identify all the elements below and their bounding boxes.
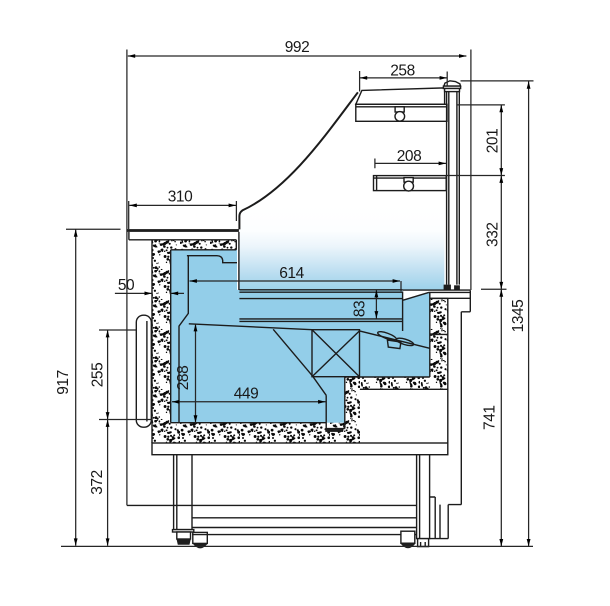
svg-text:258: 258 [390, 62, 415, 79]
svg-text:208: 208 [397, 148, 422, 165]
svg-text:1345: 1345 [510, 300, 527, 333]
svg-text:255: 255 [90, 363, 107, 388]
svg-text:372: 372 [89, 470, 106, 495]
svg-text:449: 449 [234, 385, 259, 402]
svg-text:83: 83 [352, 301, 369, 317]
svg-text:310: 310 [168, 188, 193, 205]
svg-text:917: 917 [55, 370, 72, 395]
svg-text:614: 614 [279, 265, 304, 282]
svg-text:201: 201 [485, 129, 502, 154]
svg-text:332: 332 [485, 222, 502, 247]
svg-text:741: 741 [482, 405, 499, 430]
svg-text:288: 288 [175, 366, 192, 391]
svg-text:992: 992 [285, 39, 310, 56]
svg-text:50: 50 [118, 277, 135, 294]
